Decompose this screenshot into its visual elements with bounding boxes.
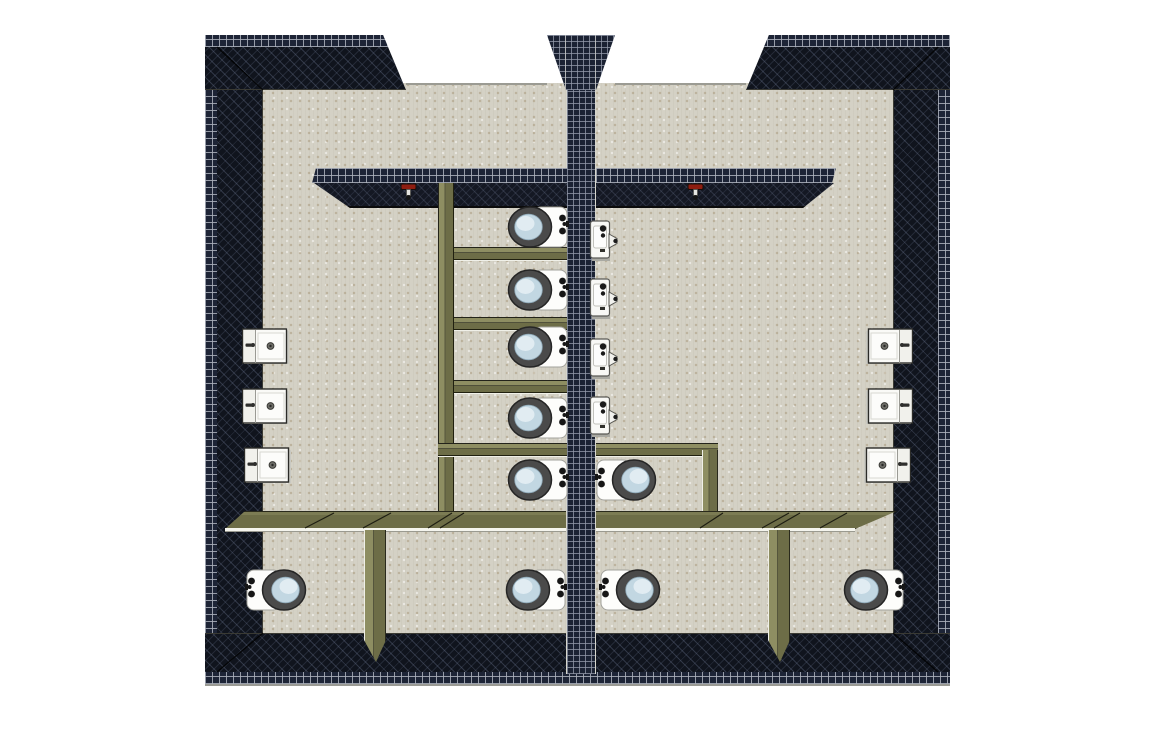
center-wall — [566, 90, 596, 674]
toilet[interactable] — [594, 457, 658, 503]
toilet[interactable] — [506, 267, 570, 313]
wall-sink[interactable] — [864, 447, 911, 485]
ledge-right-face — [596, 183, 838, 208]
ledge-left-tiles — [310, 168, 567, 183]
toilet[interactable] — [506, 457, 570, 503]
top-wall-left-segment — [205, 35, 406, 90]
toilet[interactable] — [506, 204, 570, 250]
urinal[interactable] — [589, 395, 619, 439]
wall-sink[interactable] — [242, 328, 289, 366]
toilet[interactable] — [506, 324, 570, 370]
urinal[interactable] — [589, 337, 619, 381]
flush-valve[interactable] — [400, 181, 418, 201]
stall-partition[interactable] — [225, 528, 566, 532]
right-wall-top-tiles — [938, 35, 950, 685]
top-wall-right-segment — [746, 35, 950, 90]
stall-partition[interactable] — [438, 183, 454, 530]
wall-sink[interactable] — [866, 388, 913, 426]
ledge-right-tiles — [596, 168, 838, 183]
flush-valve[interactable] — [687, 181, 705, 201]
left-wall-top-tiles — [205, 35, 217, 685]
toilet[interactable] — [842, 567, 906, 613]
top-wall-left-tiles — [205, 35, 406, 47]
wall-sink[interactable] — [866, 328, 913, 366]
stall-partition[interactable] — [225, 511, 566, 529]
stall-partition[interactable] — [596, 443, 718, 457]
plumbing-ledge-right — [596, 168, 838, 208]
toilet[interactable] — [598, 567, 662, 613]
stall-partition[interactable] — [454, 380, 567, 394]
stall-partition[interactable] — [596, 528, 855, 532]
top-wall-right-tiles — [746, 35, 950, 47]
stall-partition[interactable] — [364, 530, 386, 662]
urinal[interactable] — [589, 219, 619, 263]
stall-partition[interactable] — [438, 443, 567, 457]
viewport-3d-model — [0, 0, 1152, 748]
urinal[interactable] — [589, 277, 619, 321]
toilet[interactable] — [504, 567, 568, 613]
stall-partition[interactable] — [768, 530, 790, 662]
doorway-threshold-left — [406, 83, 547, 85]
stall-partition[interactable] — [596, 511, 897, 529]
center-wall-top-stub — [547, 33, 615, 90]
doorway-threshold-right — [615, 83, 746, 85]
wall-sink[interactable] — [244, 447, 291, 485]
toilet[interactable] — [506, 395, 570, 441]
wall-sink[interactable] — [242, 388, 289, 426]
toilet[interactable] — [244, 567, 308, 613]
